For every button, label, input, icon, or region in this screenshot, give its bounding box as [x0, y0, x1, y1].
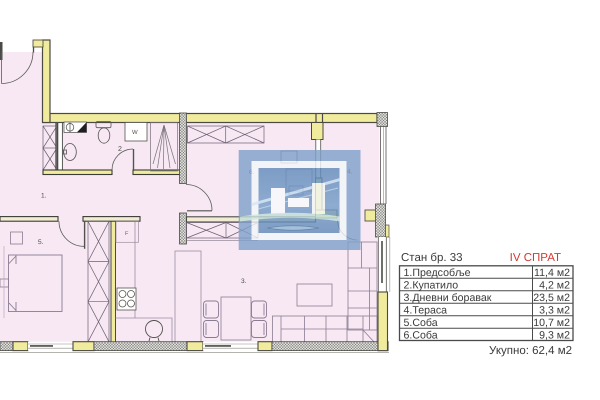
- svg-text:1.: 1.: [41, 193, 47, 200]
- svg-text:3.Дневни боравак: 3.Дневни боравак: [404, 292, 492, 304]
- svg-text:5.: 5.: [38, 239, 44, 246]
- svg-text:2.Купатило: 2.Купатило: [404, 279, 459, 291]
- svg-text:3.: 3.: [241, 278, 247, 285]
- svg-text:W: W: [132, 129, 138, 136]
- svg-text:4,2 м2: 4,2 м2: [539, 279, 570, 291]
- svg-text:Стан бр. 33: Стан бр. 33: [401, 252, 463, 264]
- svg-text:11,4 м2: 11,4 м2: [534, 267, 570, 279]
- svg-text:1.Предсобље: 1.Предсобље: [404, 267, 471, 279]
- svg-text:3,3 м2: 3,3 м2: [539, 304, 570, 316]
- svg-text:10,7 м2: 10,7 м2: [533, 317, 570, 329]
- svg-text:5.Соба: 5.Соба: [404, 317, 438, 329]
- svg-text:IV СПРАТ: IV СПРАТ: [510, 252, 561, 264]
- svg-text:4.Тераса: 4.Тераса: [404, 304, 448, 316]
- svg-text:23,5 м2: 23,5 м2: [533, 292, 570, 304]
- svg-text:6.Соба: 6.Соба: [404, 329, 438, 341]
- svg-text:Укупно: 62,4 м2: Укупно: 62,4 м2: [489, 345, 572, 357]
- svg-text:2: 2: [118, 146, 122, 153]
- svg-text:9,3 м2: 9,3 м2: [539, 329, 570, 341]
